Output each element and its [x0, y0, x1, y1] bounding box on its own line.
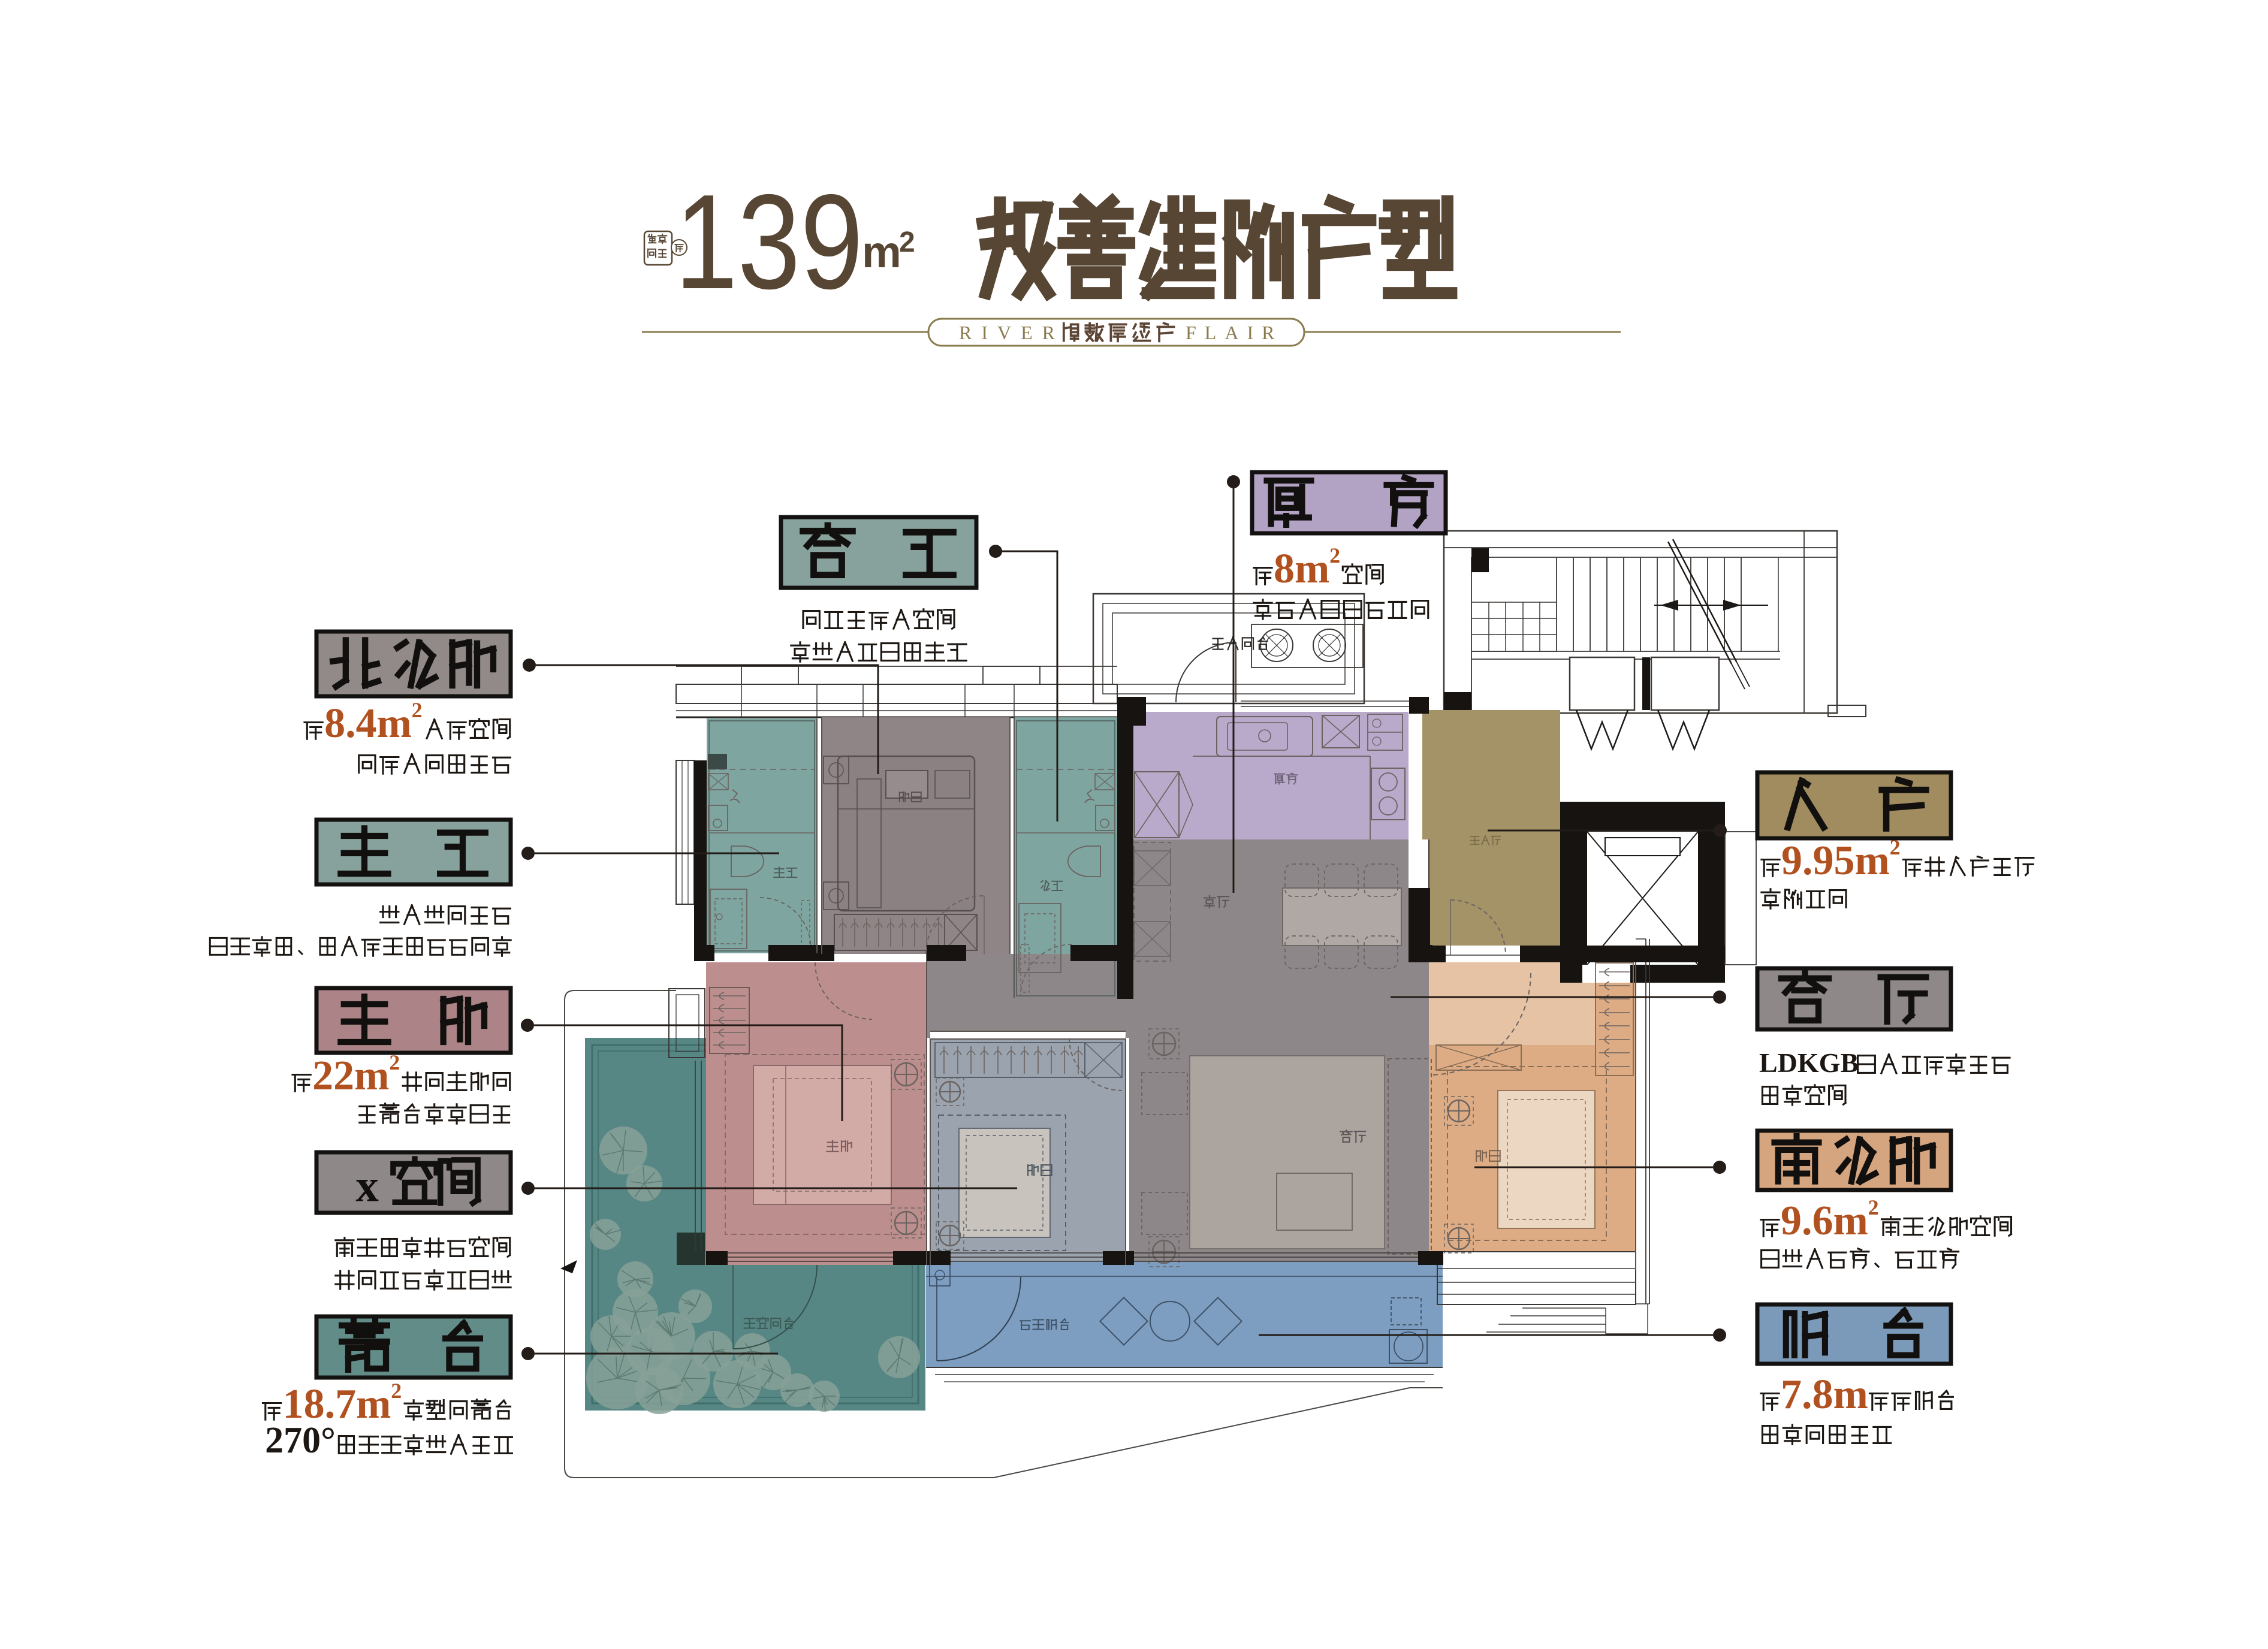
svg-text:9.6m: 9.6m	[1781, 1198, 1868, 1244]
svg-text:2: 2	[1329, 543, 1340, 567]
svg-text:2: 2	[1890, 835, 1901, 859]
svg-text:8.4m: 8.4m	[324, 700, 412, 747]
svg-text:2: 2	[899, 226, 915, 258]
svg-text:RIVER: RIVER	[959, 322, 1064, 343]
svg-text:x: x	[355, 1160, 379, 1212]
svg-text:7.8m: 7.8m	[1781, 1372, 1868, 1418]
svg-text:FLAIR: FLAIR	[1186, 322, 1283, 343]
svg-text:2: 2	[1868, 1195, 1879, 1219]
svg-text:LDKGB: LDKGB	[1759, 1047, 1859, 1078]
svg-text:m: m	[862, 227, 901, 277]
svg-text:2: 2	[389, 1050, 400, 1074]
svg-text:9.95m: 9.95m	[1781, 838, 1890, 884]
svg-text:22m: 22m	[312, 1053, 389, 1099]
svg-text:8m: 8m	[1274, 546, 1329, 592]
svg-text:2: 2	[412, 698, 423, 722]
svg-text:270°: 270°	[265, 1420, 336, 1461]
svg-text:2: 2	[391, 1379, 402, 1403]
svg-text:139: 139	[675, 166, 863, 317]
